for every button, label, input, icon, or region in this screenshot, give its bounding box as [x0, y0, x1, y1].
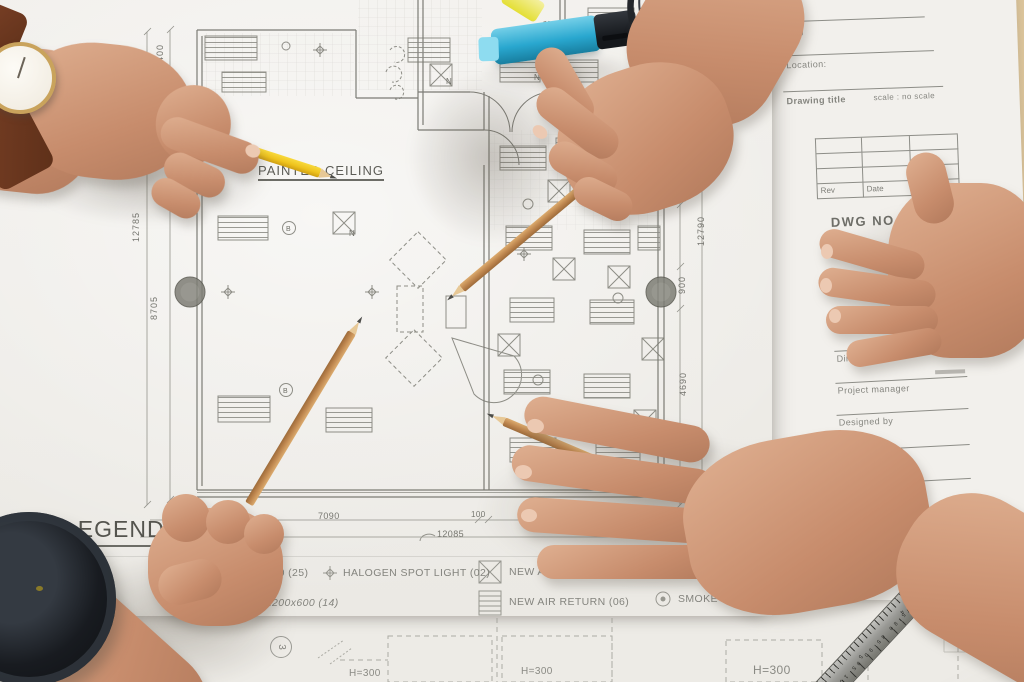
fingernail	[521, 509, 537, 522]
hand-holding-pencil-bottom	[495, 385, 1024, 682]
fingernail	[820, 278, 832, 293]
cup-glint	[36, 586, 43, 591]
dim-left-bottom: 8705	[149, 296, 159, 320]
highlighter-nib	[478, 37, 499, 62]
dim-right-mid: 900	[677, 276, 687, 294]
fingernail	[829, 309, 841, 323]
fingernail	[530, 122, 550, 141]
hand-holding-pencil-top	[520, 0, 830, 258]
knuckle	[244, 514, 284, 554]
hand-pointing-top-left	[0, 11, 305, 245]
fingernail	[821, 244, 833, 259]
hand-resting-right	[818, 148, 1024, 373]
scale-label: scale : no scale	[873, 91, 935, 102]
dim-bottom-total: 12085	[437, 529, 464, 539]
knuckle	[162, 494, 210, 542]
photo-architectural-blueprint: ding Location: Drawing title scale : no …	[0, 0, 1024, 682]
